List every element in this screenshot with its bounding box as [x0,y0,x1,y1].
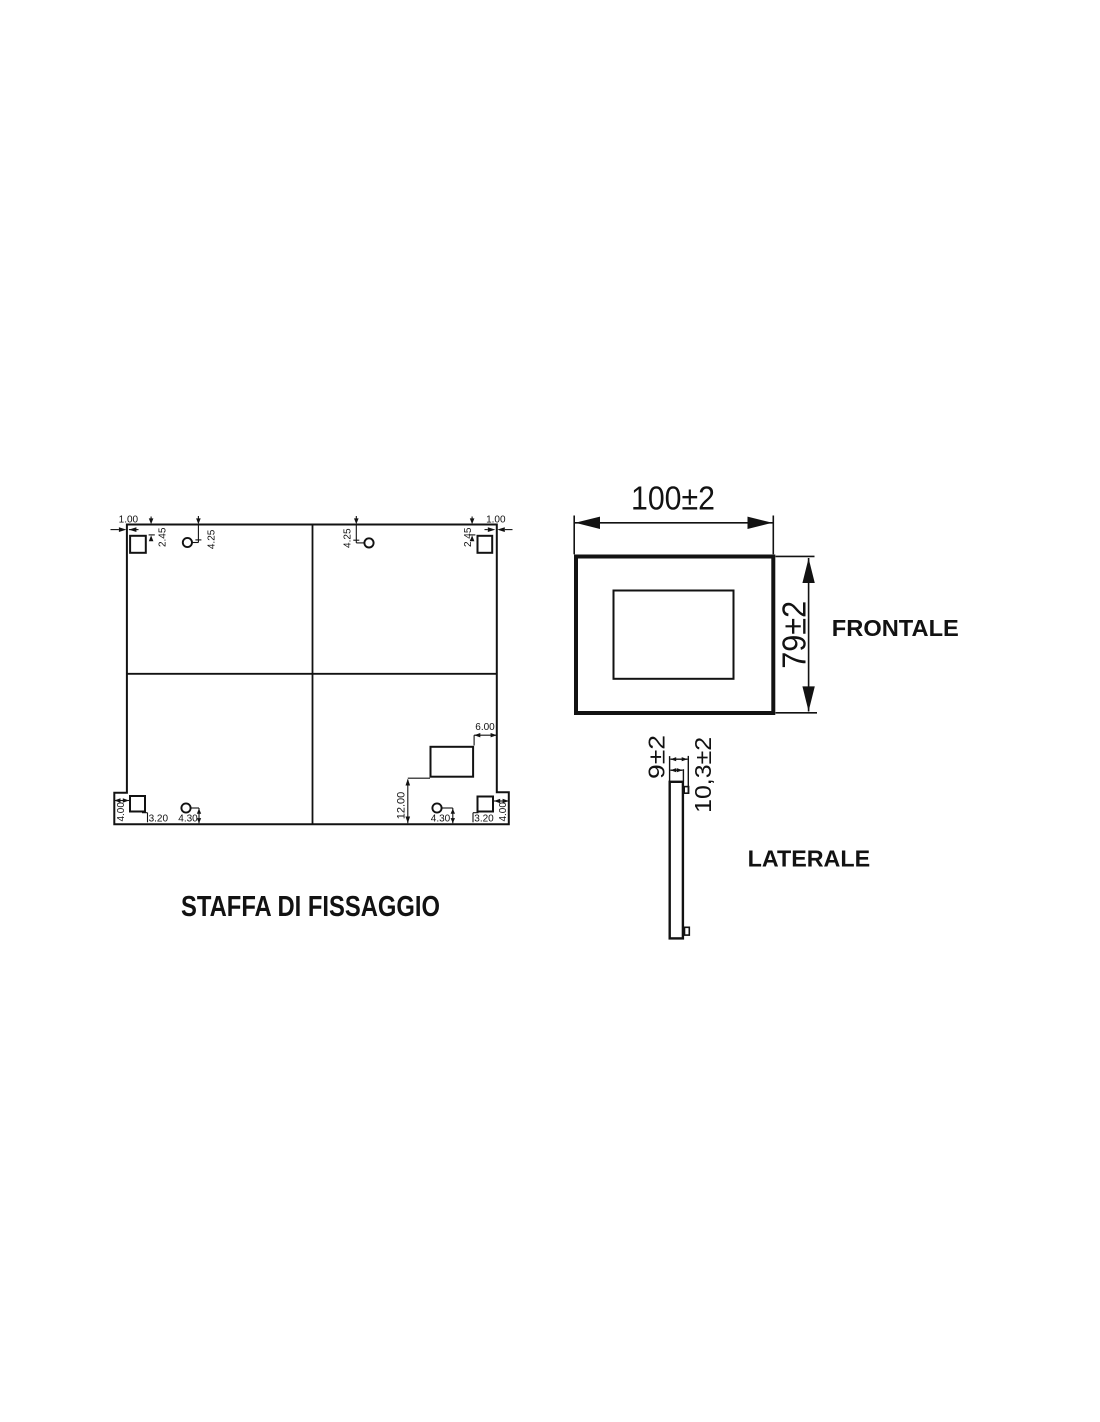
svg-text:4.25: 4.25 [207,529,218,549]
svg-text:79±2: 79±2 [776,601,813,669]
svg-text:4.30: 4.30 [178,813,198,824]
svg-text:3.20: 3.20 [474,813,494,824]
svg-text:1.00: 1.00 [119,514,139,525]
svg-text:10,3±2: 10,3±2 [690,737,716,813]
svg-text:100±2: 100±2 [631,480,715,517]
svg-text:STAFFA DI FISSAGGIO: STAFFA DI FISSAGGIO [181,891,440,923]
svg-text:4.00: 4.00 [116,802,127,822]
svg-text:3.20: 3.20 [149,813,169,824]
svg-text:2.45: 2.45 [463,527,474,547]
svg-text:12.00: 12.00 [395,792,407,820]
svg-text:6.00: 6.00 [475,722,495,733]
svg-text:LATERALE: LATERALE [748,845,871,871]
svg-text:9±2: 9±2 [643,735,669,779]
svg-text:2.45: 2.45 [158,527,169,547]
svg-text:1.00: 1.00 [486,514,506,525]
svg-text:FRONTALE: FRONTALE [832,615,959,641]
svg-text:4.00: 4.00 [498,802,509,822]
svg-text:4.25: 4.25 [342,528,353,548]
svg-text:4.30: 4.30 [431,813,451,824]
